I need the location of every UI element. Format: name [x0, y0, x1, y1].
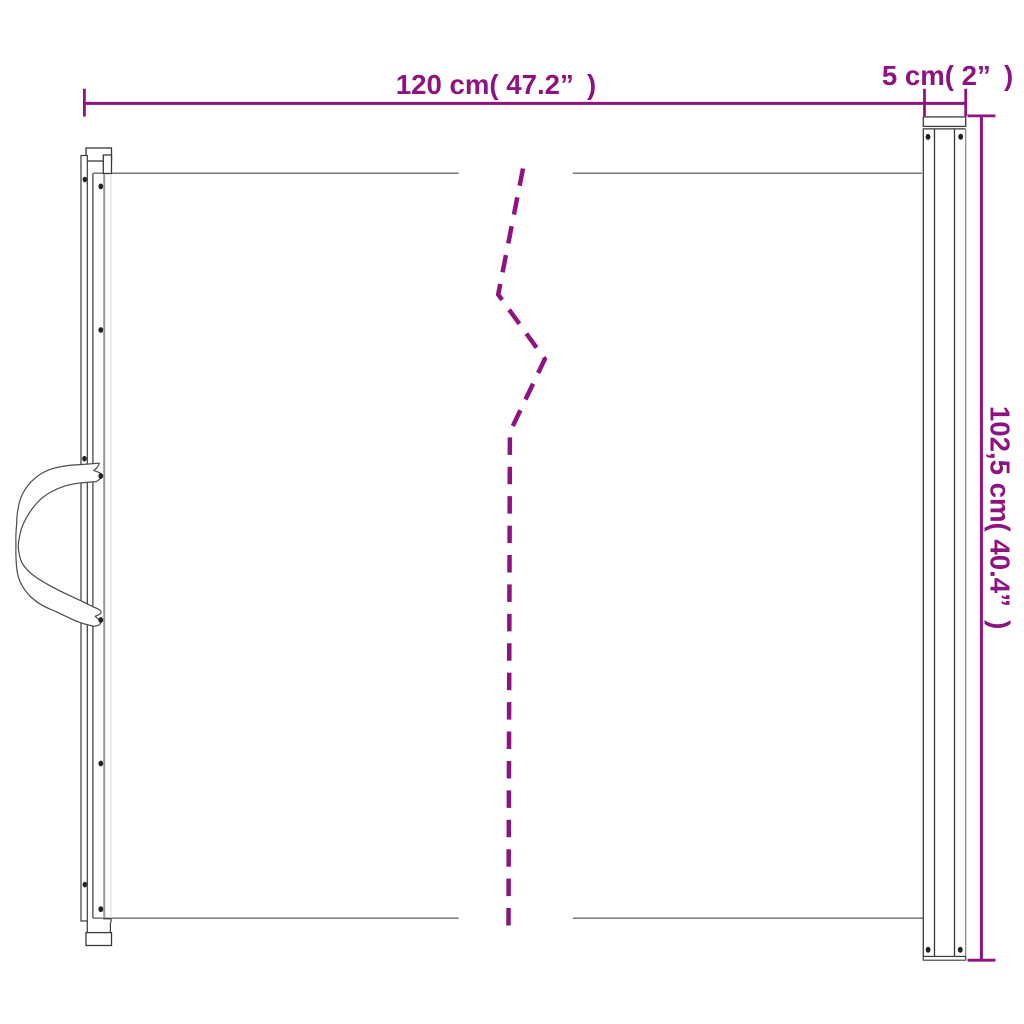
svg-text:120 cm( 47.2” ): 120 cm( 47.2” ): [396, 69, 596, 100]
svg-text:102,5 cm( 40.4” ): 102,5 cm( 40.4” ): [985, 406, 1016, 629]
svg-text:5 cm( 2” ): 5 cm( 2” ): [882, 60, 1013, 91]
